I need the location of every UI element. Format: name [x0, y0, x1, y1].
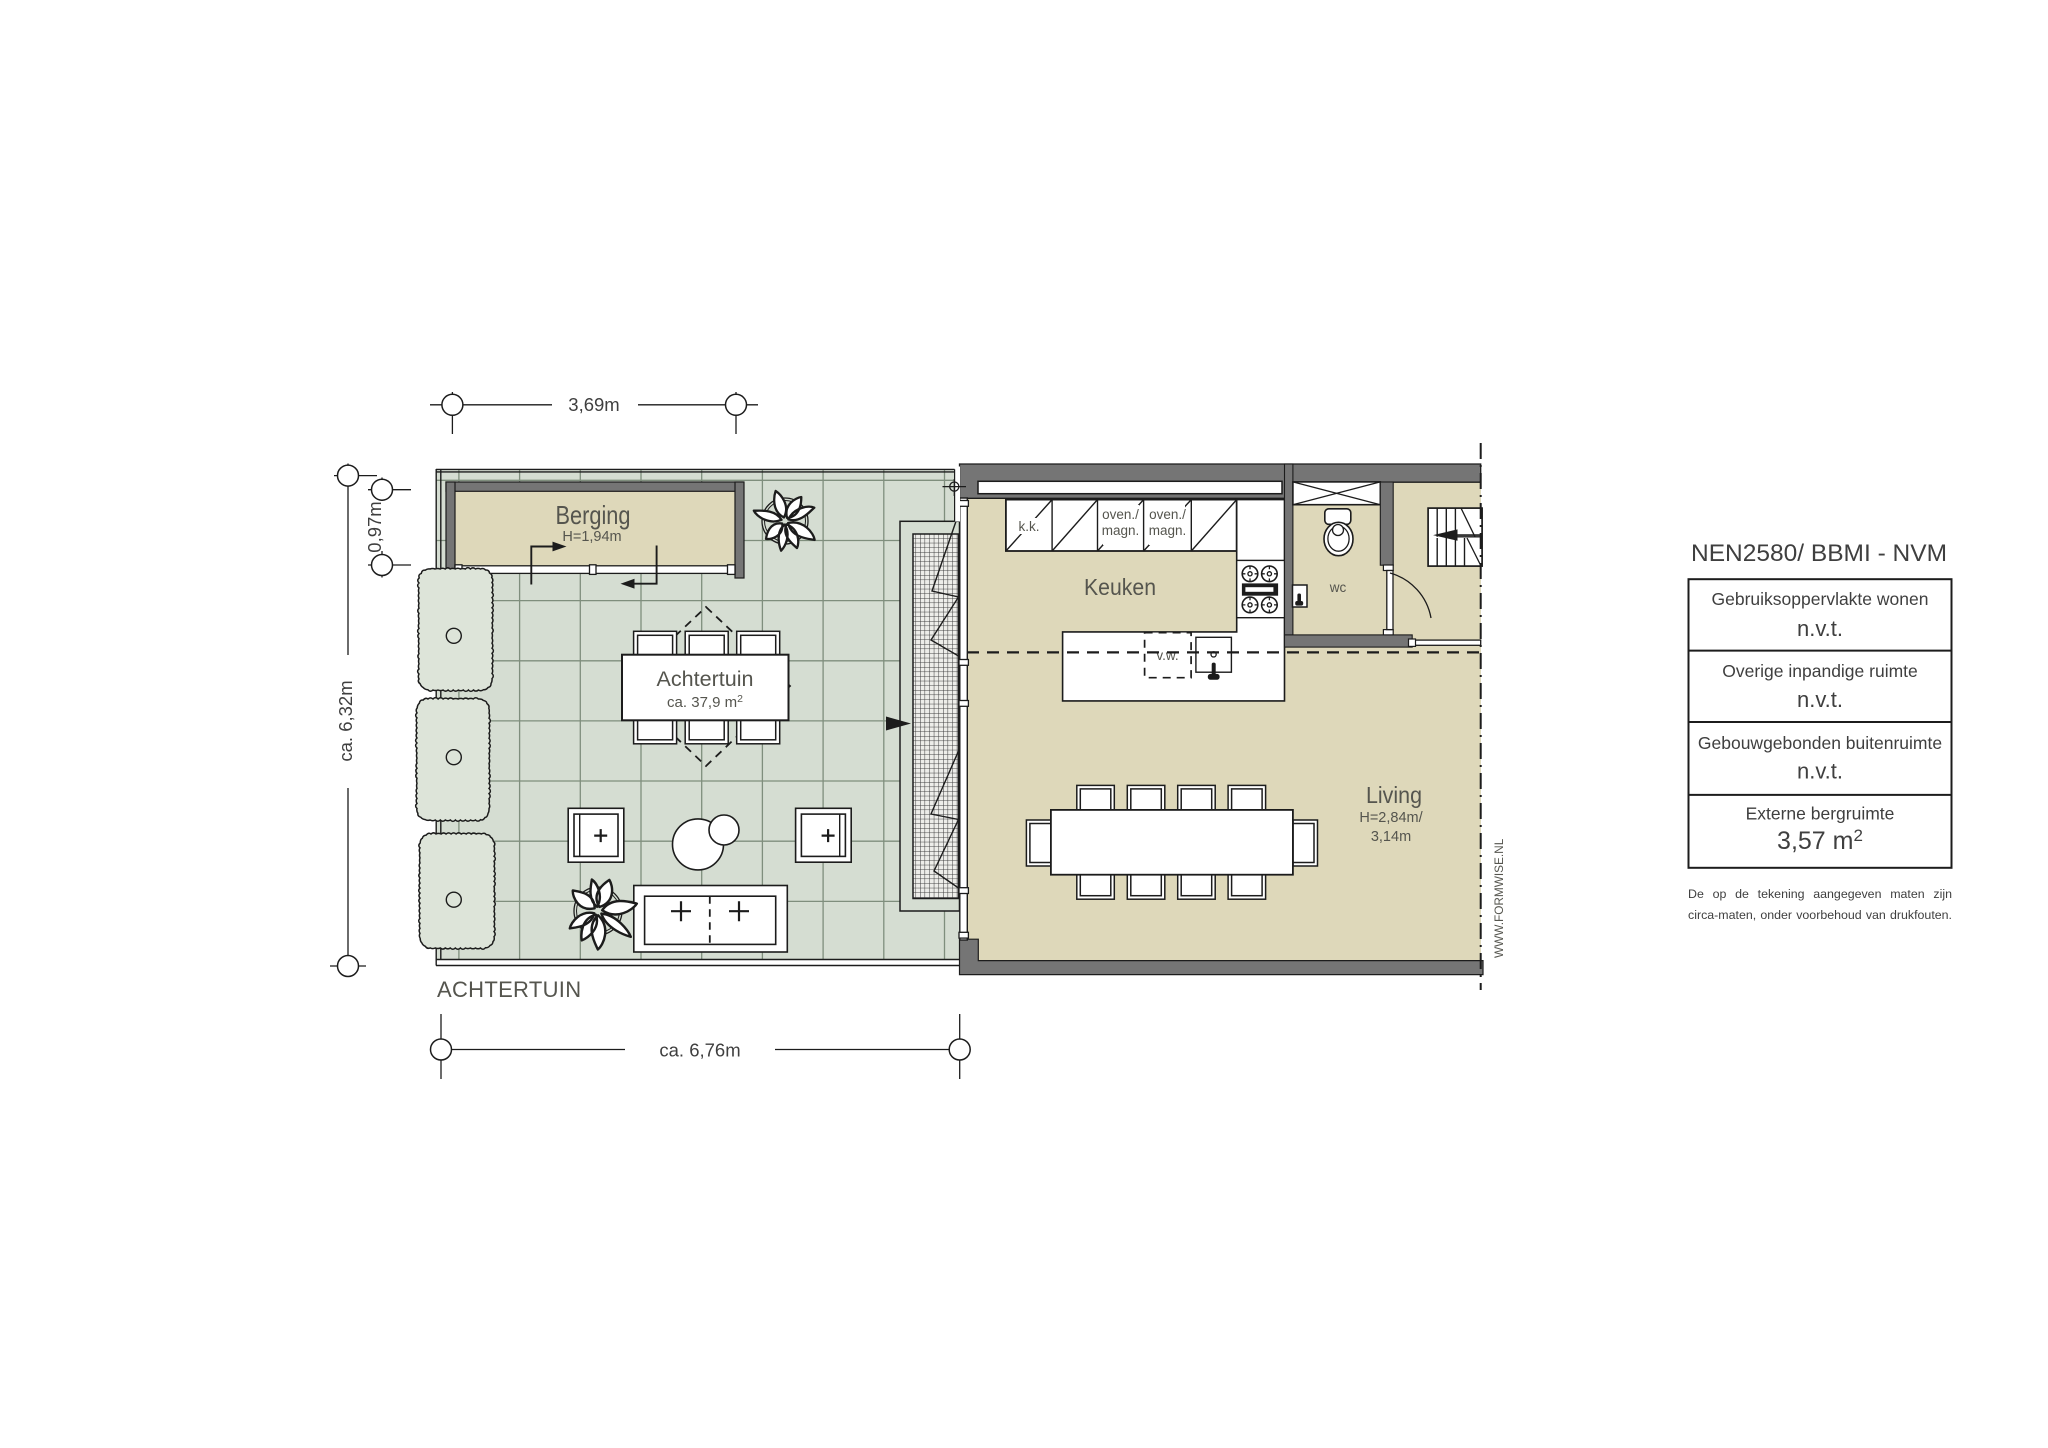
svg-text:0,97m: 0,97m — [364, 501, 385, 552]
svg-text:ACHTERTUIN: ACHTERTUIN — [437, 977, 581, 1002]
svg-text:H=1,94m: H=1,94m — [562, 529, 621, 545]
svg-text:magn.: magn. — [1102, 523, 1140, 538]
svg-text:Achtertuin: Achtertuin — [657, 667, 754, 691]
svg-text:magn.: magn. — [1149, 523, 1187, 538]
svg-text:Externe bergruimte: Externe bergruimte — [1746, 804, 1895, 824]
svg-text:n.v.t.: n.v.t. — [1797, 687, 1843, 712]
svg-text:Berging: Berging — [556, 500, 631, 530]
svg-text:n.v.t.: n.v.t. — [1797, 616, 1843, 641]
svg-text:v.w.: v.w. — [1156, 648, 1178, 663]
svg-text:3,14m: 3,14m — [1371, 829, 1411, 845]
svg-text:H=2,84m/: H=2,84m/ — [1359, 810, 1423, 826]
svg-text:ca. 6,32m: ca. 6,32m — [335, 680, 356, 761]
svg-text:Keuken: Keuken — [1084, 574, 1156, 600]
svg-text:k.k.: k.k. — [1018, 519, 1039, 534]
svg-text:3,69m: 3,69m — [568, 394, 619, 415]
svg-text:ca. 6,76m: ca. 6,76m — [659, 1040, 740, 1061]
svg-text:n.v.t.: n.v.t. — [1797, 759, 1843, 784]
svg-text:WWW.FORMWISE.NL: WWW.FORMWISE.NL — [1492, 838, 1506, 958]
svg-text:NEN2580/ BBMI - NVM: NEN2580/ BBMI - NVM — [1691, 540, 1947, 567]
svg-text:oven./: oven./ — [1149, 507, 1186, 522]
svg-text:Overige inpandige ruimte: Overige inpandige ruimte — [1722, 661, 1918, 681]
svg-text:3,57 m2: 3,57 m2 — [1777, 826, 1863, 855]
svg-text:Gebruiksoppervlakte wonen: Gebruiksoppervlakte wonen — [1712, 589, 1929, 609]
svg-text:oven./: oven./ — [1102, 507, 1139, 522]
svg-text:Gebouwgebonden buitenruimte: Gebouwgebonden buitenruimte — [1698, 733, 1942, 753]
svg-text:ca. 37,9 m2: ca. 37,9 m2 — [667, 693, 743, 711]
svg-text:Living: Living — [1366, 782, 1422, 808]
svg-text:wc: wc — [1329, 580, 1347, 595]
